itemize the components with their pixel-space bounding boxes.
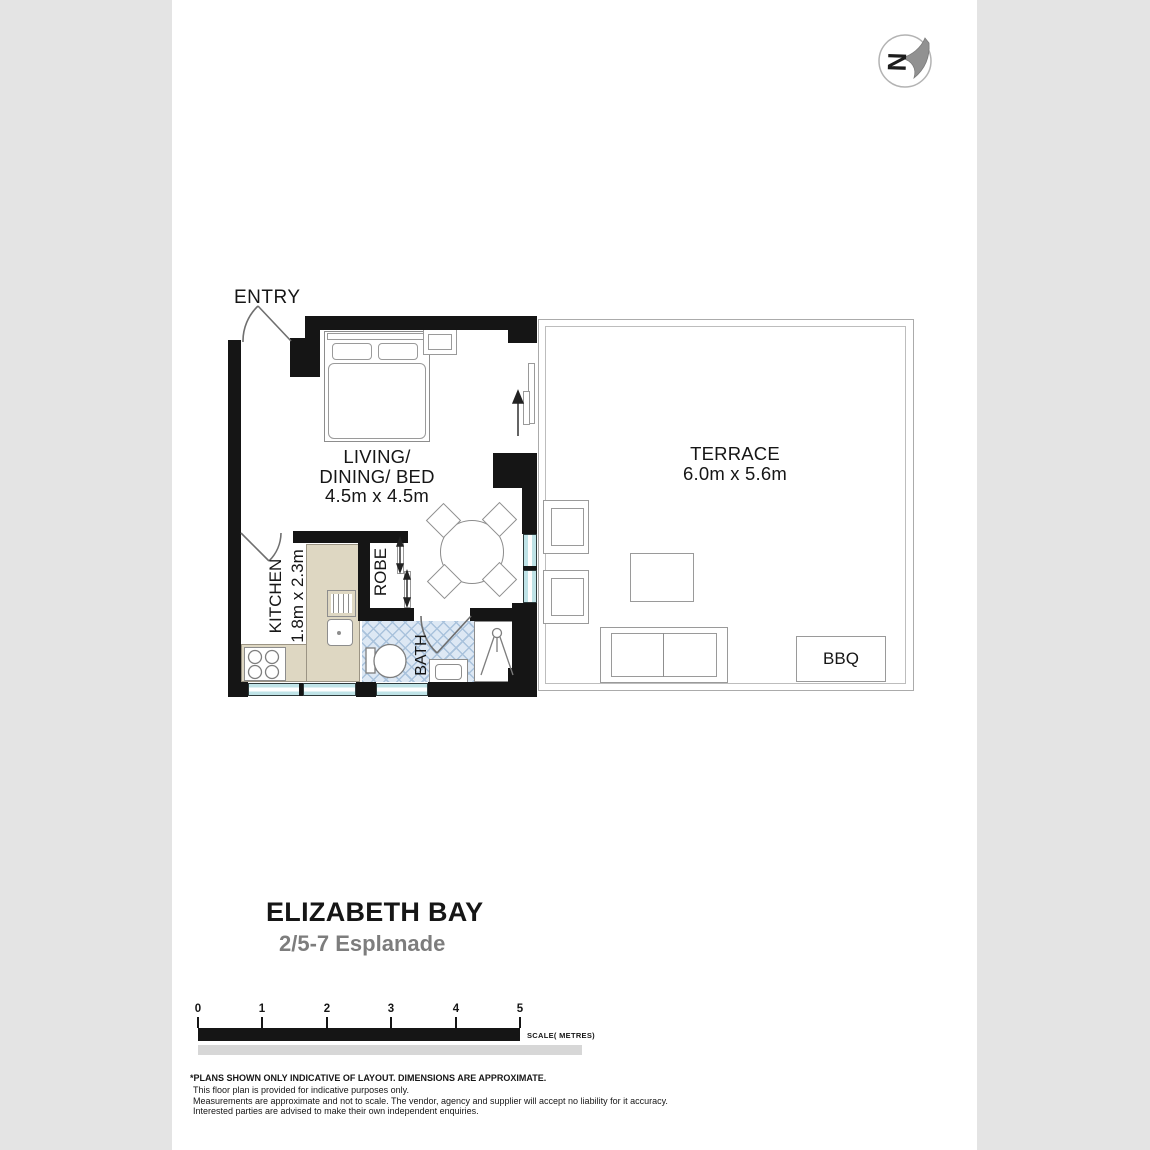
scale-tick [261,1017,263,1028]
scale-tick-label: 1 [250,1003,274,1015]
scale-tick [519,1017,521,1028]
scale-bar-gray [198,1045,582,1055]
entry-label: ENTRY [234,287,301,309]
disclaimer: *PLANS SHOWN ONLY INDICATIVE OF LAYOUT. … [190,1073,750,1117]
stove-burner [266,651,279,664]
disclaimer-headline: *PLANS SHOWN ONLY INDICATIVE OF LAYOUT. … [190,1073,750,1084]
arrow-head [397,538,403,546]
living-label-line2: DINING/ BED [297,467,457,487]
scale-tick [390,1017,392,1028]
terrace-label-dims: 6.0m x 5.6m [645,464,825,484]
disclaimer-line: This floor plan is provided for indicati… [190,1085,750,1096]
stove-burner [266,666,279,679]
arrow-head [404,598,410,606]
toilet [374,645,406,678]
scale-tick-label: 4 [444,1003,468,1015]
entry-door-leaf [258,306,291,341]
page-title: ELIZABETH BAY [266,897,483,928]
living-label-dims: 4.5m x 4.5m [297,486,457,506]
scale-tick-label: 5 [508,1003,532,1015]
kitchen-label-name: KITCHEN [265,541,287,651]
scale-caption: SCALE( METRES) [527,1031,595,1040]
arrow-head [513,391,523,403]
kitchen-label-dims: 1.8m x 2.3m [287,541,309,651]
north-compass-icon: N [879,35,931,87]
sink-drain-dot [337,631,341,635]
page-subtitle: 2/5-7 Esplanade [279,931,445,957]
arrow-head [397,564,403,572]
disclaimer-line: Measurements are approximate and not to … [190,1096,750,1107]
arrow-head [404,571,410,579]
scale-tick [455,1017,457,1028]
terrace-label: TERRACE 6.0m x 5.6m [645,444,825,484]
floorplan-page: BBQ [0,0,1150,1150]
bath-door-leaf [437,616,471,653]
scale-tick [197,1017,199,1028]
shower-head [493,629,502,638]
living-room-label: LIVING/ DINING/ BED 4.5m x 4.5m [297,447,457,506]
living-label-line1: LIVING/ [297,447,457,467]
entry-door-arc [243,306,258,342]
shower-spray-line [481,637,494,675]
disclaimer-line: Interested parties are advised to make t… [190,1106,750,1117]
compass-north-letter: N [882,52,913,72]
scale-tick [326,1017,328,1028]
kitchen-label: KITCHEN 1.8m x 2.3m [265,541,309,651]
robe-label: ROBE [371,542,389,602]
scale-tick-label: 0 [186,1003,210,1015]
shower-spray-line [500,637,513,675]
scale-tick-label: 3 [379,1003,403,1015]
scale-tick-label: 2 [315,1003,339,1015]
scale-bar-black [198,1028,520,1041]
stove-burner [249,651,262,664]
stove-burner [249,666,262,679]
bath-label: BATH [413,630,429,680]
terrace-label-name: TERRACE [645,444,825,464]
plan-overlay: N [0,0,1150,1150]
